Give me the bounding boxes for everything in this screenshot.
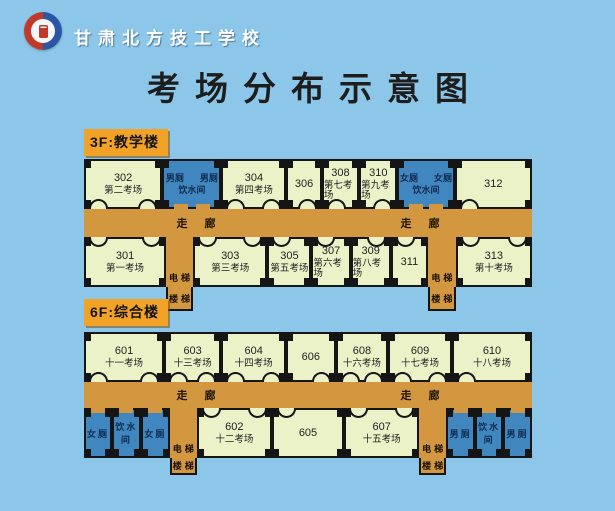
- room-number: 604: [244, 346, 262, 357]
- door-arc-icon: [312, 372, 331, 382]
- door-arc-icon: [262, 372, 281, 382]
- room-number: 304: [245, 173, 263, 184]
- wc-women-left: 女厕: [84, 408, 112, 458]
- plan-3f: 302 第二考场 男厕 男厕 饮水间 304 第四考场: [84, 159, 532, 287]
- door-arc-icon: [460, 199, 479, 209]
- water-room-label: 饮水间: [178, 185, 205, 195]
- door-arc-icon: [226, 199, 245, 209]
- door-arc-icon: [226, 372, 245, 382]
- room-number: 313: [485, 251, 503, 262]
- water-room-label: 饮水间: [114, 420, 139, 446]
- elevator-label: 电梯: [428, 271, 455, 284]
- water-room-label: 饮水间: [413, 185, 440, 195]
- floor-label-6f: 6F:综合楼: [84, 299, 168, 326]
- door-arc-icon: [243, 237, 262, 247]
- door-arc-icon: [508, 237, 527, 247]
- door-gap: [409, 204, 423, 210]
- elevator-stairs-shaft: 电梯 楼梯: [166, 237, 193, 287]
- elevator-label: 电梯: [166, 271, 193, 284]
- corridor-6f: 走廊 走廊: [84, 382, 532, 408]
- room-601: 601 十一考场: [84, 332, 164, 382]
- room-number: 601: [115, 346, 133, 357]
- room-312: 312: [455, 159, 532, 209]
- door-gap: [482, 407, 496, 413]
- room-name: 十七考场: [401, 359, 439, 369]
- school-logo-icon: [24, 12, 62, 50]
- door-arc-icon: [298, 199, 317, 209]
- corridor-label: 走廊: [160, 215, 233, 231]
- floor-label-3f: 3F:教学楼: [84, 129, 168, 156]
- room-number: 310: [369, 168, 387, 179]
- exam-room-distribution-poster: 甘肃北方技工学校 考场分布示意图 3F:教学楼 302 第二考场 男厕 男厕 饮…: [0, 0, 615, 511]
- row-3f-bottom: 301 第一考场 电梯 楼梯 303 第三考场: [84, 237, 532, 287]
- wc-label: 女厕: [87, 427, 109, 440]
- room-305: 305 第五考场: [267, 237, 311, 287]
- door-gap: [429, 204, 443, 210]
- room-number: 301: [116, 251, 134, 262]
- row-6f-top: 601 十一考场 603 十三考场 604 十四考场: [84, 332, 532, 382]
- plan-6f: 601 十一考场 603 十三考场 604 十四考场: [84, 332, 532, 458]
- door-arc-icon: [198, 237, 217, 247]
- room-number: 606: [302, 352, 320, 363]
- wc-label: 男厕: [166, 173, 184, 183]
- wc-men-right-2: 男厕: [503, 408, 532, 458]
- room-number: 605: [299, 428, 317, 439]
- row-3f-top: 302 第二考场 男厕 男厕 饮水间 304 第四考场: [84, 159, 532, 209]
- room-306: 306: [286, 159, 321, 209]
- corridor-3f: 走廊 走廊: [84, 209, 532, 237]
- wc-label: 女厕: [400, 173, 418, 183]
- room-name: 第四考场: [235, 186, 273, 196]
- elevator-label: 电梯: [170, 442, 197, 455]
- room-name: 第九考场: [361, 181, 395, 201]
- room-number: 603: [183, 346, 201, 357]
- door-arc-icon: [272, 237, 291, 247]
- door-arc-icon: [457, 372, 476, 382]
- room-311: 311: [391, 237, 428, 287]
- door-arc-icon: [461, 237, 480, 247]
- room-number: 610: [483, 346, 501, 357]
- water-room-right: 饮水间: [475, 408, 503, 458]
- room-name: 十二考场: [215, 435, 253, 445]
- room-604: 604 十四考场: [221, 332, 286, 382]
- room-name: 十八考场: [473, 359, 511, 369]
- room-605: 605: [272, 408, 344, 458]
- room-608: 608 十六考场: [336, 332, 388, 382]
- room-310: 310 第九考场: [359, 159, 397, 209]
- room-number: 609: [411, 346, 429, 357]
- room-number: 312: [484, 179, 502, 190]
- room-name: 十一考场: [105, 359, 143, 369]
- room-name: 第六考场: [313, 259, 348, 279]
- room-name: 十四考场: [235, 359, 273, 369]
- corridor-label: 走廊: [384, 387, 457, 403]
- door-gap: [119, 407, 133, 413]
- room-name: 第二考场: [104, 186, 142, 196]
- room-603: 603 十三考场: [164, 332, 221, 382]
- room-name: 第三考场: [211, 264, 249, 274]
- door-gap: [174, 204, 188, 210]
- door-gap: [148, 407, 162, 413]
- school-name: 甘肃北方技工学校: [74, 24, 266, 49]
- room-name: 第七考场: [324, 181, 357, 201]
- door-arc-icon: [393, 372, 412, 382]
- room-name: 第八考场: [353, 259, 389, 279]
- door-arc-icon: [89, 372, 108, 382]
- room-number: 607: [372, 422, 390, 433]
- stairwell: 楼梯: [170, 458, 197, 475]
- wc-label: 男厕: [450, 427, 472, 440]
- wc-label: 男厕: [200, 173, 218, 183]
- door-arc-icon: [138, 199, 157, 209]
- corridor-label: 走廊: [384, 215, 457, 231]
- room-name: 十五考场: [363, 435, 401, 445]
- room-name: 十三考场: [174, 359, 212, 369]
- logo-emblem: [39, 25, 48, 38]
- room-number: 602: [225, 422, 243, 433]
- room-name: 第一考场: [106, 264, 144, 274]
- room-610: 610 十八考场: [452, 332, 532, 382]
- door-gap: [454, 407, 468, 413]
- room-308: 308 第七考场: [322, 159, 359, 209]
- room-number: 309: [362, 246, 380, 257]
- door-arc-icon: [202, 408, 221, 418]
- floor-plan-6f: 6F:综合楼 601 十一考场 603 十三考场 604 十四考场: [84, 299, 532, 458]
- corridor-label: 走廊: [160, 387, 233, 403]
- room-wc-water-mens: 男厕 男厕 饮水间: [162, 159, 221, 209]
- room-607: 607 十五考场: [344, 408, 419, 458]
- room-name: 十六考场: [343, 359, 381, 369]
- room-609: 609 十七考场: [388, 332, 452, 382]
- door-arc-icon: [140, 372, 159, 382]
- door-gap: [511, 407, 525, 413]
- room-name: 第十考场: [475, 264, 513, 274]
- room-303: 303 第三考场: [193, 237, 267, 287]
- stairs-label: 楼梯: [170, 459, 197, 472]
- room-number: 308: [331, 168, 349, 179]
- room-number: 302: [114, 173, 132, 184]
- room-number: 306: [295, 179, 313, 190]
- wc-label: 男厕: [507, 427, 529, 440]
- page-title: 考场分布示意图: [0, 62, 615, 110]
- room-309: 309 第八考场: [351, 237, 391, 287]
- stairwell: 楼梯: [419, 458, 446, 475]
- door-arc-icon: [89, 237, 108, 247]
- door-arc-icon: [197, 372, 216, 382]
- row-6f-bottom: 女厕 饮水间 女厕 电梯 楼梯 602: [84, 408, 532, 458]
- room-wc-water-womens: 女厕 女厕 饮水间: [397, 159, 454, 209]
- elevator-stairs-shaft: 电梯 楼梯: [170, 408, 197, 458]
- door-arc-icon: [262, 199, 281, 209]
- room-606: 606: [286, 332, 336, 382]
- door-arc-icon: [341, 372, 360, 382]
- door-gap: [196, 204, 210, 210]
- room-302: 302 第二考场: [84, 159, 162, 209]
- floor-plan-3f: 3F:教学楼 302 第二考场 男厕 男厕 饮水间: [84, 129, 532, 287]
- room-name: 第五考场: [270, 264, 308, 274]
- elevator-stairs-shaft: 电梯 楼梯: [419, 408, 446, 458]
- elevator-label: 电梯: [419, 442, 446, 455]
- door-gap: [91, 407, 105, 413]
- door-arc-icon: [395, 408, 414, 418]
- room-301: 301 第一考场: [84, 237, 166, 287]
- door-arc-icon: [428, 372, 447, 382]
- door-arc-icon: [89, 199, 108, 209]
- room-307: 307 第六考场: [311, 237, 350, 287]
- water-room-label: 饮水间: [477, 420, 501, 446]
- door-arc-icon: [327, 199, 346, 209]
- room-number: 311: [401, 257, 419, 268]
- room-313: 313 第十考场: [456, 237, 532, 287]
- wc-men-right: 男厕: [446, 408, 475, 458]
- room-number: 307: [322, 246, 340, 257]
- room-number: 303: [221, 251, 239, 262]
- room-number: 305: [280, 251, 298, 262]
- room-304: 304 第四考场: [221, 159, 286, 209]
- room-602: 602 十二考场: [197, 408, 272, 458]
- door-arc-icon: [248, 408, 267, 418]
- door-arc-icon: [396, 237, 415, 247]
- door-arc-icon: [373, 199, 392, 209]
- wc-label: 女厕: [144, 427, 166, 440]
- room-number: 608: [353, 346, 371, 357]
- door-arc-icon: [364, 372, 383, 382]
- elevator-stairs-shaft: 电梯 楼梯: [428, 237, 456, 287]
- water-room-left: 饮水间: [112, 408, 141, 458]
- door-arc-icon: [169, 372, 188, 382]
- door-arc-icon: [277, 408, 296, 418]
- door-arc-icon: [142, 237, 161, 247]
- door-arc-icon: [349, 408, 368, 418]
- wc-women-left-2: 女厕: [141, 408, 170, 458]
- stairs-label: 楼梯: [419, 459, 446, 472]
- wc-label: 女厕: [434, 173, 452, 183]
- logo-core: [31, 19, 55, 43]
